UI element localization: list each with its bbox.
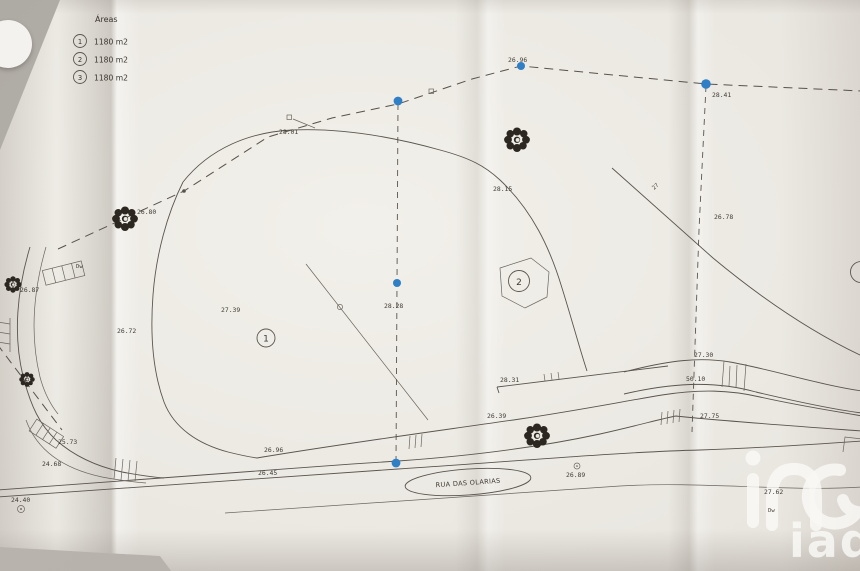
dimension-label: 50.10 xyxy=(686,375,705,383)
tree-icon xyxy=(504,127,530,152)
road-hatch-center xyxy=(409,434,422,449)
elevation-label: 26.80 xyxy=(137,208,156,216)
annotation-label: Dw xyxy=(76,264,83,270)
parcel-3-circle xyxy=(851,262,860,283)
parcel-2-blob-outline xyxy=(500,258,549,308)
utility-diagonal-line xyxy=(306,264,428,420)
square-marker xyxy=(287,115,292,120)
left-road-inner xyxy=(34,247,58,414)
elevation-label: 27.62 xyxy=(764,488,783,496)
parcel-2-number: 2 xyxy=(516,278,522,288)
elevation-label: 27.75 xyxy=(700,412,719,420)
elevation-label: 26.78 xyxy=(714,213,733,221)
ladder-symbol-left-edge xyxy=(0,318,10,352)
right-fence-diagonal xyxy=(612,168,860,356)
elevation-label: 28.01 xyxy=(279,128,298,136)
elevation-label: 28.28 xyxy=(384,302,403,310)
upper-road-pair-2 xyxy=(624,384,860,413)
parcel-boundary-dome-top xyxy=(183,130,587,371)
manhole-center xyxy=(20,508,22,510)
tree-icon xyxy=(19,372,34,387)
hatch-symbol-kerb xyxy=(114,458,137,481)
elevation-label: 27.39 xyxy=(221,306,240,314)
survey-point-blue xyxy=(701,79,711,89)
upper-road-pair-1 xyxy=(624,360,860,391)
elevation-label: 24.68 xyxy=(42,460,61,468)
legend-area-1: 1180 m2 xyxy=(94,38,128,47)
legend-num-3: 3 xyxy=(78,74,82,82)
legend-area-3: 1180 m2 xyxy=(94,74,128,83)
elevation-label: 26.89 xyxy=(566,471,585,479)
plan-drawing: 1 2 RUA DAS OLARIAS Áreas 1 1180 m2 2 11… xyxy=(0,0,860,571)
elevation-label: 26.96 xyxy=(508,56,527,64)
point-marker xyxy=(182,189,186,193)
legend-num-2: 2 xyxy=(78,56,82,64)
boundary-dashed-line xyxy=(58,66,860,249)
elevation-label: 28.41 xyxy=(712,91,731,99)
left-boundary-dashed xyxy=(0,344,62,430)
legend-area-2: 1180 m2 xyxy=(94,56,128,65)
legend-num-1: 1 xyxy=(78,38,82,46)
corner-structure-topright xyxy=(843,437,860,452)
survey-point-blue xyxy=(392,459,401,468)
elevation-label: 26.72 xyxy=(117,327,136,335)
elevation-label: 25.73 xyxy=(58,438,77,446)
elevation-label: 28.31 xyxy=(500,376,519,384)
iad-monogram-i-dot xyxy=(746,451,761,466)
elevation-label: 27.30 xyxy=(694,351,713,359)
survey-point-blue xyxy=(394,97,403,106)
elevation-label: 26.96 xyxy=(264,446,283,454)
parcel-boundary-dome-left xyxy=(152,182,257,458)
retaining-wall-line xyxy=(497,366,668,393)
tree-icon xyxy=(112,206,138,231)
parcel-1-number: 1 xyxy=(263,335,269,345)
road-edge-mid xyxy=(0,416,860,490)
iad-wordmark: iad xyxy=(789,514,860,568)
elevation-label: 28.15 xyxy=(493,185,512,193)
elevation-label: 26.39 xyxy=(487,412,506,420)
elevation-label: 26.45 xyxy=(258,469,277,477)
elevation-label: 24.40 xyxy=(11,496,30,504)
street-name-label: RUA DAS OLARIAS xyxy=(435,477,500,490)
slope-label: 27 xyxy=(651,183,660,192)
legend-title: Áreas xyxy=(95,13,118,24)
elevation-label: 26.87 xyxy=(20,286,39,294)
culvert-symbol xyxy=(722,361,746,391)
annotation-label: Dw xyxy=(768,508,775,514)
manhole-center xyxy=(576,465,578,467)
survey-point-blue xyxy=(393,279,401,287)
survey-plan-photo: 1 2 RUA DAS OLARIAS Áreas 1 1180 m2 2 11… xyxy=(0,0,860,571)
areas-legend: Áreas 1 1180 m2 2 1180 m2 3 1180 m2 xyxy=(74,13,129,84)
iad-watermark: iad xyxy=(746,451,860,569)
